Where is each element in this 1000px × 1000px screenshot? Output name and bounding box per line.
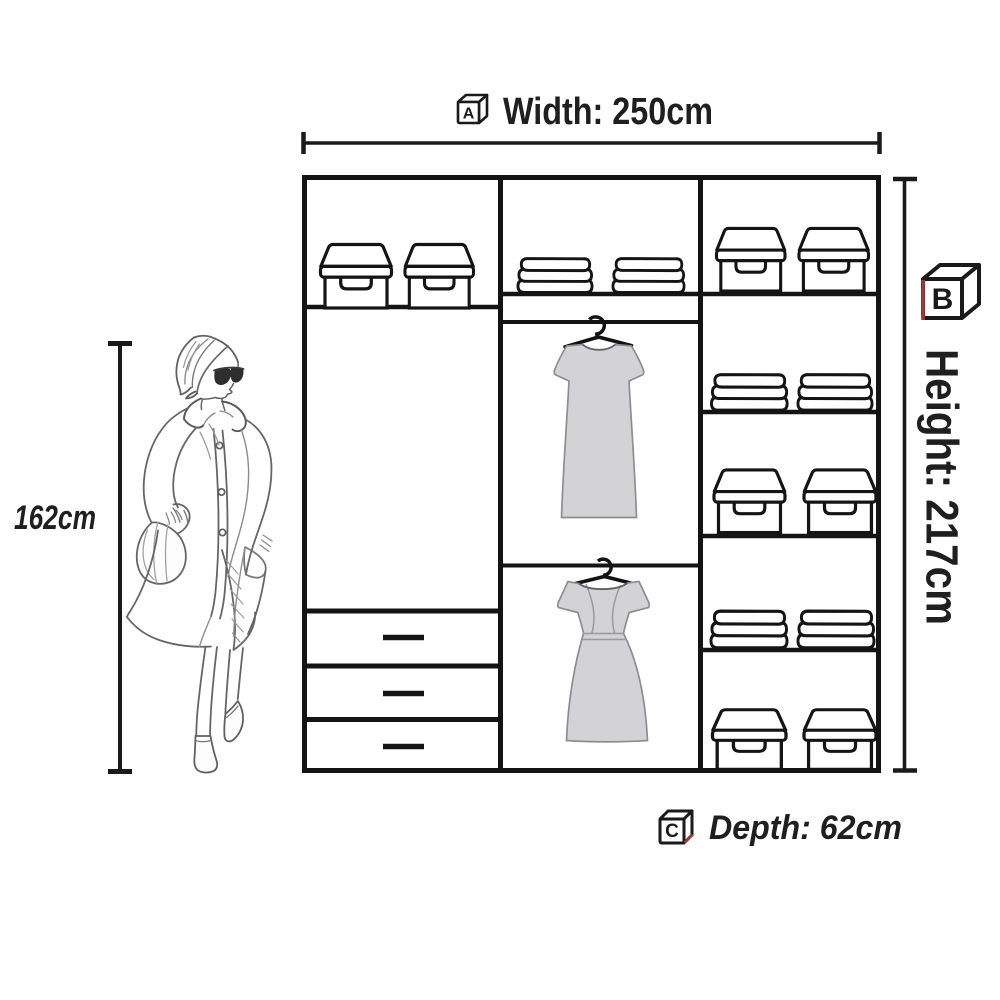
svg-text:A: A — [463, 106, 475, 123]
svg-text:Height: 217cm: Height: 217cm — [917, 349, 968, 625]
svg-text:Depth: 62cm: Depth: 62cm — [709, 809, 902, 847]
svg-text:162cm: 162cm — [14, 499, 96, 537]
svg-text:C: C — [665, 821, 679, 842]
svg-text:Width: 250cm: Width: 250cm — [503, 91, 713, 133]
svg-text:B: B — [932, 283, 954, 316]
